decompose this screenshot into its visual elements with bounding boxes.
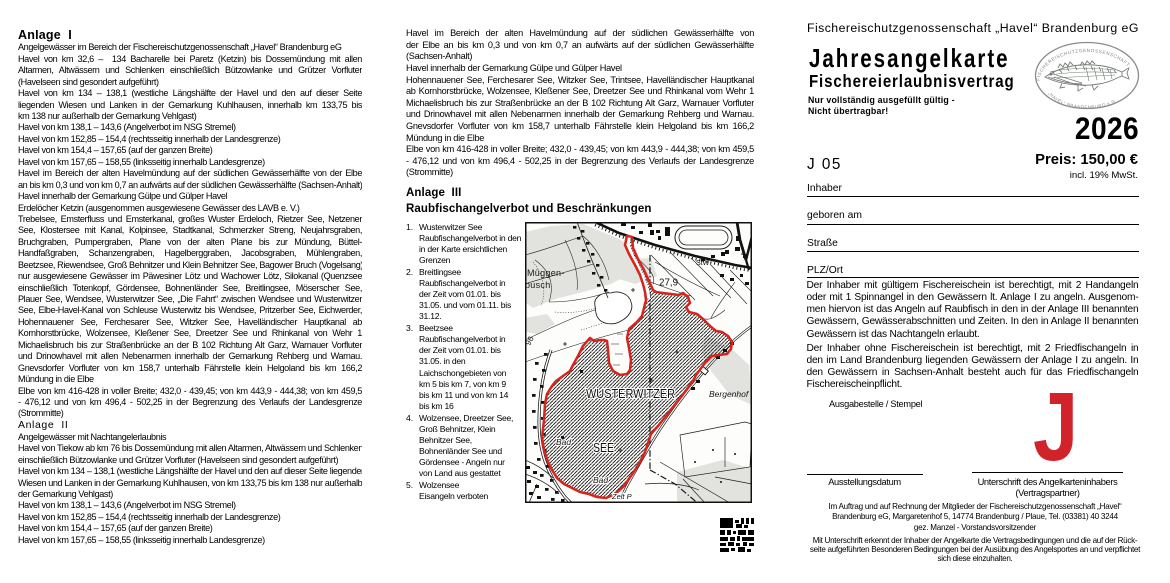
- svg-text:„HAVEL“ BRANDENBURG e.G: „HAVEL“ BRANDENBURG e.G: [1047, 91, 1116, 110]
- svg-text:WUSTERWITZER: WUSTERWITZER: [586, 387, 675, 401]
- svg-text:Zelt P: Zelt P: [611, 492, 632, 501]
- svg-text:StW: StW: [696, 260, 710, 267]
- svg-text:Bad: Bad: [556, 437, 571, 447]
- svg-text:4,: 4,: [741, 249, 748, 258]
- svg-text:Bergenhof: Bergenhof: [709, 389, 750, 399]
- svg-text:27,9: 27,9: [659, 278, 678, 289]
- svg-text:Müggen-: Müggen-: [527, 268, 565, 278]
- svg-text:Bad: Bad: [593, 475, 608, 485]
- svg-text:busch: busch: [525, 280, 551, 290]
- svg-text:SEE: SEE: [593, 441, 614, 455]
